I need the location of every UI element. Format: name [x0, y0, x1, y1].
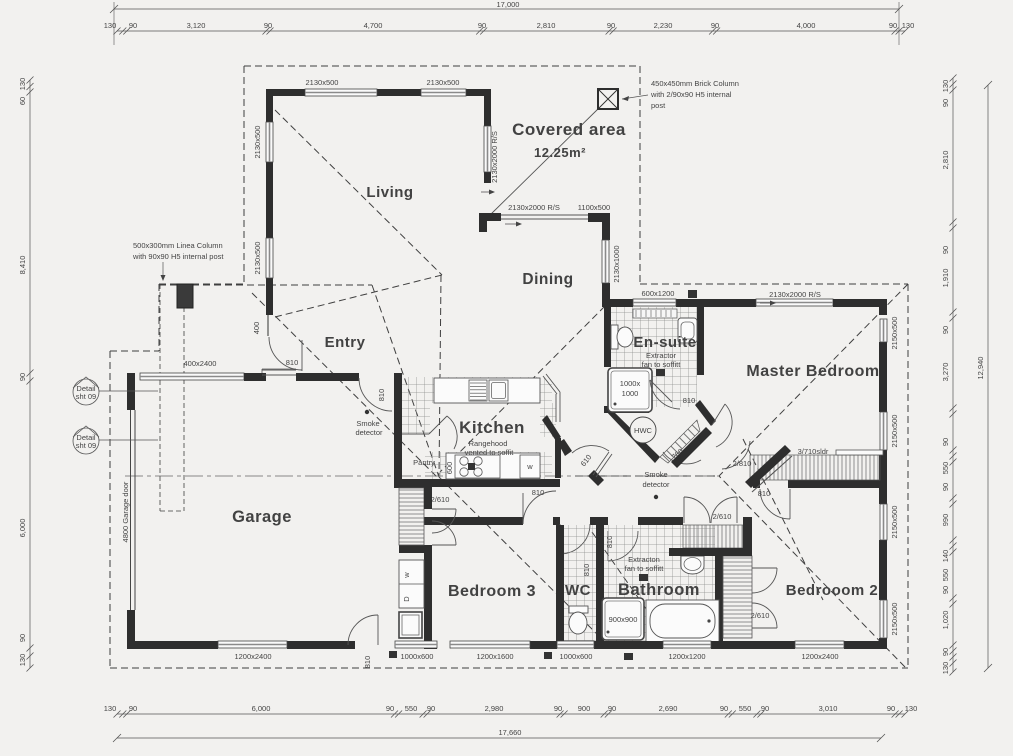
svg-text:2,230: 2,230 [654, 21, 673, 30]
svg-text:90: 90 [386, 704, 394, 713]
svg-text:2150x500: 2150x500 [890, 603, 899, 636]
svg-text:90: 90 [941, 246, 950, 254]
svg-text:12,940: 12,940 [976, 357, 985, 380]
svg-text:130: 130 [941, 662, 950, 675]
svg-text:1000x600: 1000x600 [560, 652, 593, 661]
svg-text:Extractor: Extractor [646, 351, 677, 360]
svg-text:130: 130 [18, 654, 27, 667]
svg-text:810: 810 [758, 489, 771, 498]
svg-text:2130x500: 2130x500 [427, 78, 460, 87]
svg-text:1,910: 1,910 [941, 269, 950, 288]
svg-text:Kitchen: Kitchen [459, 418, 525, 437]
svg-text:90: 90 [607, 21, 615, 30]
svg-text:600: 600 [445, 462, 454, 475]
svg-text:8,410: 8,410 [18, 256, 27, 275]
svg-text:post: post [651, 101, 666, 110]
svg-text:6,000: 6,000 [252, 704, 271, 713]
svg-text:Pantry: Pantry [413, 458, 435, 467]
svg-text:130: 130 [104, 704, 117, 713]
svg-text:Bedroom 3: Bedroom 3 [448, 583, 536, 600]
svg-text:w: w [402, 572, 411, 579]
svg-text:1,020: 1,020 [941, 611, 950, 630]
svg-text:90: 90 [129, 704, 137, 713]
svg-text:130: 130 [941, 80, 950, 93]
svg-text:12.25m²: 12.25m² [534, 145, 586, 160]
svg-text:550: 550 [405, 704, 418, 713]
svg-text:90: 90 [887, 704, 895, 713]
svg-text:Extracton: Extracton [628, 555, 660, 564]
svg-text:2,810: 2,810 [537, 21, 556, 30]
svg-text:Entry: Entry [325, 334, 366, 351]
svg-text:810: 810 [363, 656, 372, 669]
svg-text:4,700: 4,700 [364, 21, 383, 30]
svg-text:90: 90 [129, 21, 137, 30]
svg-text:with 2/90x90 H5 internal: with 2/90x90 H5 internal [650, 90, 732, 99]
svg-text:Covered area: Covered area [512, 120, 626, 139]
svg-text:810: 810 [582, 564, 591, 577]
svg-text:90: 90 [941, 438, 950, 446]
svg-text:1000x600: 1000x600 [401, 652, 434, 661]
svg-text:90: 90 [941, 483, 950, 491]
svg-text:130: 130 [902, 21, 915, 30]
svg-text:900: 900 [578, 704, 591, 713]
svg-text:2150x500: 2150x500 [890, 506, 899, 539]
svg-text:3,120: 3,120 [187, 21, 206, 30]
svg-text:detector: detector [355, 428, 383, 437]
svg-text:810: 810 [683, 396, 696, 405]
svg-text:Smoke: Smoke [356, 419, 379, 428]
svg-text:130: 130 [905, 704, 918, 713]
svg-text:Bedrooom 2: Bedrooom 2 [786, 582, 879, 599]
svg-text:HWC: HWC [634, 426, 652, 435]
svg-text:600x1200: 600x1200 [642, 289, 675, 298]
svg-text:130: 130 [18, 78, 27, 91]
svg-text:60: 60 [18, 97, 27, 105]
svg-text:Bathroom: Bathroom [618, 581, 700, 599]
svg-text:2/610: 2/610 [713, 512, 732, 521]
svg-text:En-suite: En-suite [633, 334, 696, 351]
svg-text:2/810: 2/810 [733, 459, 752, 468]
svg-text:130: 130 [104, 21, 117, 30]
svg-text:2130x2000 R/S: 2130x2000 R/S [769, 290, 821, 299]
svg-text:3,270: 3,270 [941, 363, 950, 382]
svg-text:Garage: Garage [232, 508, 292, 526]
svg-text:550: 550 [739, 704, 752, 713]
svg-text:Living: Living [366, 184, 413, 201]
svg-text:vented to soffit: vented to soffit [465, 448, 515, 457]
svg-text:2150x500: 2150x500 [890, 317, 899, 350]
svg-text:90: 90 [427, 704, 435, 713]
svg-text:2,980: 2,980 [485, 704, 504, 713]
svg-text:2130x500: 2130x500 [306, 78, 339, 87]
svg-text:810: 810 [286, 358, 299, 367]
svg-text:1200x2400: 1200x2400 [801, 652, 838, 661]
svg-text:1000x: 1000x [620, 379, 641, 388]
svg-text:90: 90 [18, 373, 27, 381]
svg-text:90: 90 [941, 648, 950, 656]
svg-text:500x300mm Linea Column: 500x300mm Linea Column [133, 241, 223, 250]
svg-text:2,690: 2,690 [659, 704, 678, 713]
svg-text:2130x2000 R/S: 2130x2000 R/S [490, 131, 499, 183]
svg-text:sht 09: sht 09 [76, 392, 96, 401]
svg-text:fan to soffitt: fan to soffitt [625, 564, 665, 573]
svg-text:4800 Garage door: 4800 Garage door [121, 481, 130, 542]
svg-text:90: 90 [761, 704, 769, 713]
svg-text:Dining: Dining [522, 271, 573, 288]
svg-text:810: 810 [377, 389, 386, 402]
svg-text:sht 09: sht 09 [76, 441, 96, 450]
svg-text:400x2400: 400x2400 [184, 359, 217, 368]
svg-text:6,000: 6,000 [18, 519, 27, 538]
svg-text:2130x500: 2130x500 [253, 242, 262, 275]
svg-text:90: 90 [941, 326, 950, 334]
svg-text:Smoke: Smoke [644, 470, 667, 479]
svg-text:2130x2000 R/S: 2130x2000 R/S [508, 203, 560, 212]
svg-text:2/610: 2/610 [751, 611, 770, 620]
svg-text:2130x500: 2130x500 [253, 126, 262, 159]
svg-text:Rangehood: Rangehood [469, 439, 508, 448]
svg-text:1100x500: 1100x500 [578, 203, 610, 212]
svg-text:w: w [526, 462, 533, 471]
svg-text:90: 90 [889, 21, 897, 30]
svg-text:4,000: 4,000 [797, 21, 816, 30]
svg-text:3/710sldr: 3/710sldr [798, 447, 829, 456]
svg-text:450x450mm Brick Column: 450x450mm Brick Column [651, 79, 739, 88]
svg-text:D: D [402, 596, 411, 602]
svg-text:fan to soffitt: fan to soffitt [642, 360, 682, 369]
svg-text:Master Bedroom: Master Bedroom [746, 363, 879, 380]
svg-text:90: 90 [720, 704, 728, 713]
svg-text:90: 90 [608, 704, 616, 713]
svg-text:2150x500: 2150x500 [890, 415, 899, 448]
svg-text:17,000: 17,000 [497, 0, 520, 9]
svg-text:detector: detector [642, 480, 670, 489]
svg-text:1000: 1000 [622, 389, 639, 398]
svg-text:1200x1200: 1200x1200 [668, 652, 705, 661]
svg-text:90: 90 [711, 21, 719, 30]
svg-text:140: 140 [941, 550, 950, 563]
svg-text:2/610: 2/610 [431, 495, 450, 504]
svg-text:2130x1000: 2130x1000 [612, 245, 621, 282]
svg-text:1200x2400: 1200x2400 [234, 652, 271, 661]
svg-text:1200x1600: 1200x1600 [476, 652, 513, 661]
svg-text:2,810: 2,810 [941, 151, 950, 170]
svg-text:400: 400 [252, 322, 261, 335]
svg-text:90: 90 [478, 21, 486, 30]
svg-text:90: 90 [941, 99, 950, 107]
svg-text:3,010: 3,010 [819, 704, 838, 713]
svg-text:550: 550 [941, 569, 950, 582]
svg-text:90: 90 [554, 704, 562, 713]
svg-text:17,660: 17,660 [499, 728, 522, 737]
svg-text:90: 90 [941, 586, 950, 594]
svg-text:990: 990 [941, 514, 950, 527]
svg-text:90: 90 [18, 634, 27, 642]
svg-text:550: 550 [941, 462, 950, 475]
svg-text:810: 810 [532, 488, 545, 497]
svg-text:900x900: 900x900 [609, 615, 638, 624]
svg-text:WC: WC [565, 582, 591, 599]
svg-text:90: 90 [264, 21, 272, 30]
svg-text:with 90x90 H5 internal post: with 90x90 H5 internal post [132, 252, 224, 261]
